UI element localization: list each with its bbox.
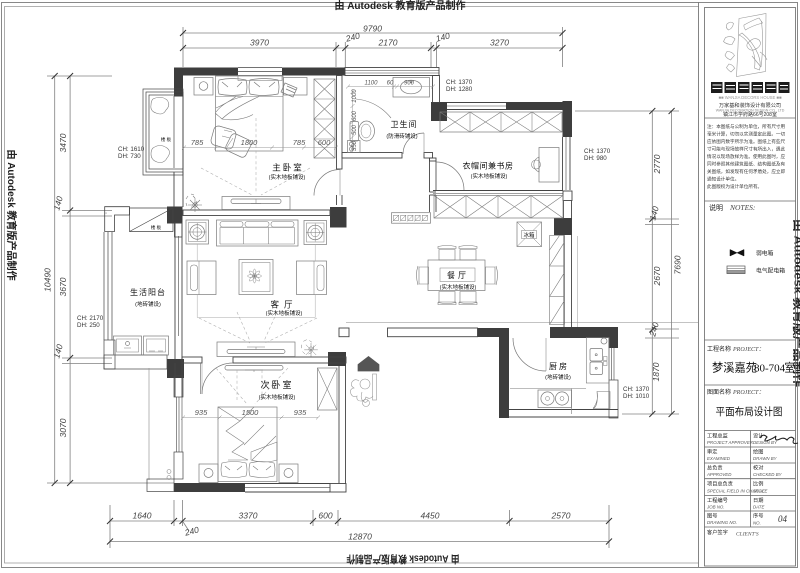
svg-text:12870: 12870 (348, 532, 372, 542)
svg-text:1000: 1000 (352, 89, 358, 103)
svg-text:(实木地板铺设): (实木地板铺设) (440, 283, 477, 291)
svg-text:EXAMINED: EXAMINED (707, 456, 731, 461)
svg-text:冰箱: 冰箱 (523, 231, 535, 239)
svg-text:通知设计单位。: 通知设计单位。 (707, 176, 739, 183)
svg-text:1800: 1800 (241, 138, 259, 147)
svg-text:镇江市学府路66号208室: 镇江市学府路66号208室 (723, 111, 777, 118)
svg-text:工程总监: 工程总监 (707, 432, 728, 440)
svg-text:主卧室: 主卧室 (272, 162, 304, 172)
svg-text:应依图内数字所示为准。图纸上有些尺: 应依图内数字所示为准。图纸上有些尺 (707, 138, 786, 145)
svg-text:项目总负责: 项目总负责 (707, 480, 733, 488)
svg-text:梦溪嘉苑: 梦溪嘉苑 (712, 362, 757, 375)
svg-text:NOTES:: NOTES: (729, 203, 755, 212)
svg-text:总负责: 总负责 (707, 464, 723, 472)
svg-text:JOB NO.: JOB NO. (706, 505, 725, 510)
svg-text:04: 04 (778, 514, 788, 524)
svg-text:3970: 3970 (250, 38, 269, 48)
svg-text:3670: 3670 (58, 277, 68, 296)
svg-text:由 Autodesk 教育版产品制作: 由 Autodesk 教育版产品制作 (5, 149, 18, 280)
svg-text:SCALE: SCALE (753, 489, 767, 494)
svg-text:140: 140 (51, 343, 64, 360)
svg-text:CH: 1370: CH: 1370 (446, 79, 473, 86)
svg-text:3470: 3470 (58, 133, 68, 152)
svg-text:240: 240 (183, 524, 200, 537)
svg-text:校对: 校对 (753, 464, 763, 472)
svg-text:说明: 说明 (709, 203, 723, 212)
svg-text:(实木地板铺设): (实木地板铺设) (269, 173, 306, 181)
svg-text:1500: 1500 (242, 408, 260, 417)
svg-text:DRAWING NO.: DRAWING NO. (707, 520, 737, 525)
svg-text:餐厅: 餐厅 (447, 271, 469, 280)
svg-text:DH: 1280: DH: 1280 (446, 86, 473, 93)
svg-text:1870: 1870 (651, 362, 661, 381)
svg-text:弱电箱: 弱电箱 (756, 249, 774, 257)
svg-text:240: 240 (647, 321, 661, 339)
svg-text:CH: 1370: CH: 1370 (623, 386, 650, 393)
svg-text:绘图: 绘图 (753, 448, 763, 456)
svg-text:由 Autodesk 教育版产品制作: 由 Autodesk 教育版产品制作 (347, 553, 460, 566)
svg-text:CH: 1610: CH: 1610 (118, 146, 145, 153)
svg-text:PROJECT：: PROJECT： (732, 347, 764, 353)
svg-text:DH: 730: DH: 730 (118, 153, 141, 160)
svg-text:10490: 10490 (43, 268, 53, 292)
svg-text:NO.: NO. (753, 521, 761, 526)
svg-text:客厅: 客厅 (270, 299, 297, 309)
svg-text:500: 500 (352, 124, 358, 135)
svg-text:次卧室: 次卧室 (260, 379, 293, 390)
svg-text:900: 900 (404, 81, 415, 87)
svg-text:4450: 4450 (421, 511, 440, 521)
svg-text:平面布局设计图: 平面布局设计图 (716, 405, 783, 418)
svg-text:图号: 图号 (707, 513, 717, 520)
svg-text:■■ WANJIA DECORS HOUSE ■■: ■■ WANJIA DECORS HOUSE ■■ (718, 95, 781, 100)
svg-text:3370: 3370 (239, 511, 258, 521)
svg-text:3070: 3070 (58, 418, 68, 437)
svg-text:(实木地板铺设): (实木地板铺设) (259, 393, 296, 401)
svg-text:序号: 序号 (753, 512, 763, 520)
svg-text:(实木地板铺设): (实木地板铺设) (266, 309, 303, 317)
svg-text:DRAWN BY: DRAWN BY (753, 456, 778, 461)
svg-text:240: 240 (344, 30, 361, 43)
svg-text:情况以现场放样为准。使用此图时，应: 情况以现场放样为准。使用此图时，应 (707, 153, 786, 160)
svg-text:2670: 2670 (652, 266, 662, 286)
svg-text:600: 600 (318, 138, 331, 147)
svg-text:同时参照其他建筑图纸、结构图纸及有: 同时参照其他建筑图纸、结构图纸及有 (707, 161, 786, 168)
svg-text:2770: 2770 (652, 154, 662, 174)
svg-text:毫米计算，切勿以实测量定此图。一切: 毫米计算，切勿以实测量定此图。一切 (707, 131, 786, 138)
svg-text:日期: 日期 (753, 497, 763, 504)
svg-text:140: 140 (435, 30, 451, 43)
svg-text:(地砖铺设): (地砖铺设) (135, 300, 161, 308)
svg-text:注：本图纸与公制为单位，所有尺寸用: 注：本图纸与公制为单位，所有尺寸用 (707, 123, 786, 130)
svg-text:2570: 2570 (551, 511, 571, 521)
svg-text:7690: 7690 (673, 255, 683, 274)
svg-text:80-704: 80-704 (754, 363, 786, 375)
svg-text:60: 60 (387, 81, 394, 87)
svg-text:1100: 1100 (365, 81, 379, 87)
svg-text:关图纸，如发现有任何矛盾处，应立即: 关图纸，如发现有任何矛盾处，应立即 (707, 168, 786, 175)
svg-text:PROJECT：: PROJECT： (732, 390, 764, 396)
svg-text:3270: 3270 (490, 38, 509, 48)
svg-text:PROJECT APPROVER: PROJECT APPROVER (707, 440, 754, 445)
svg-text:785: 785 (191, 138, 204, 147)
svg-text:600: 600 (318, 511, 332, 521)
svg-text:审定: 审定 (707, 448, 717, 456)
svg-text:DH: 980: DH: 980 (584, 155, 607, 162)
svg-text:(防滑砖铺设): (防滑砖铺设) (386, 132, 417, 140)
svg-text:DH: 1010: DH: 1010 (623, 393, 650, 400)
svg-text:CH: 1370: CH: 1370 (584, 148, 611, 155)
svg-text:楼 板: 楼 板 (161, 136, 172, 143)
svg-text:1640: 1640 (133, 511, 152, 521)
svg-text:935: 935 (195, 408, 208, 417)
svg-text:DATE: DATE (753, 505, 764, 510)
svg-text:寸可能与现场放样尺寸有所出入，遇此: 寸可能与现场放样尺寸有所出入，遇此 (707, 146, 786, 153)
svg-text:厨房: 厨房 (549, 361, 569, 371)
svg-text:APPROVED: APPROVED (706, 472, 732, 477)
svg-text:CLIENT'S: CLIENT'S (736, 532, 759, 538)
svg-text:衣帽间兼书房: 衣帽间兼书房 (463, 161, 514, 171)
svg-text:工程名称: 工程名称 (707, 345, 731, 353)
svg-text:350: 350 (352, 140, 358, 151)
svg-text:客户签字: 客户签字 (707, 528, 728, 536)
svg-text:生活阳台: 生活阳台 (130, 287, 166, 297)
svg-text:卫生间: 卫生间 (391, 119, 418, 129)
svg-text:楼 板: 楼 板 (151, 224, 162, 231)
svg-text:工程编号: 工程编号 (707, 496, 728, 504)
svg-text:DH: 250: DH: 250 (77, 322, 100, 329)
svg-text:(地砖铺设): (地砖铺设) (545, 373, 571, 381)
svg-text:785: 785 (293, 138, 306, 147)
svg-text:由 Autodesk 教育版产品制作: 由 Autodesk 教育版产品制作 (334, 0, 465, 12)
svg-text:CHECKED BY: CHECKED BY (753, 472, 783, 477)
svg-text:140: 140 (51, 195, 64, 212)
svg-text:图面名称: 图面名称 (707, 388, 731, 396)
svg-text:电气配电箱: 电气配电箱 (756, 267, 785, 275)
svg-text:比例: 比例 (753, 480, 763, 488)
svg-text:CH: 2170: CH: 2170 (77, 315, 104, 322)
svg-text:室: 室 (785, 361, 795, 375)
svg-text:此图版权为设计单位所有。: 此图版权为设计单位所有。 (707, 183, 762, 190)
svg-text:935: 935 (294, 408, 307, 417)
svg-text:9790: 9790 (363, 24, 382, 34)
svg-text:600: 600 (352, 110, 358, 121)
svg-text:2170: 2170 (378, 38, 398, 48)
svg-text:(实木地板铺设): (实木地板铺设) (471, 172, 508, 180)
